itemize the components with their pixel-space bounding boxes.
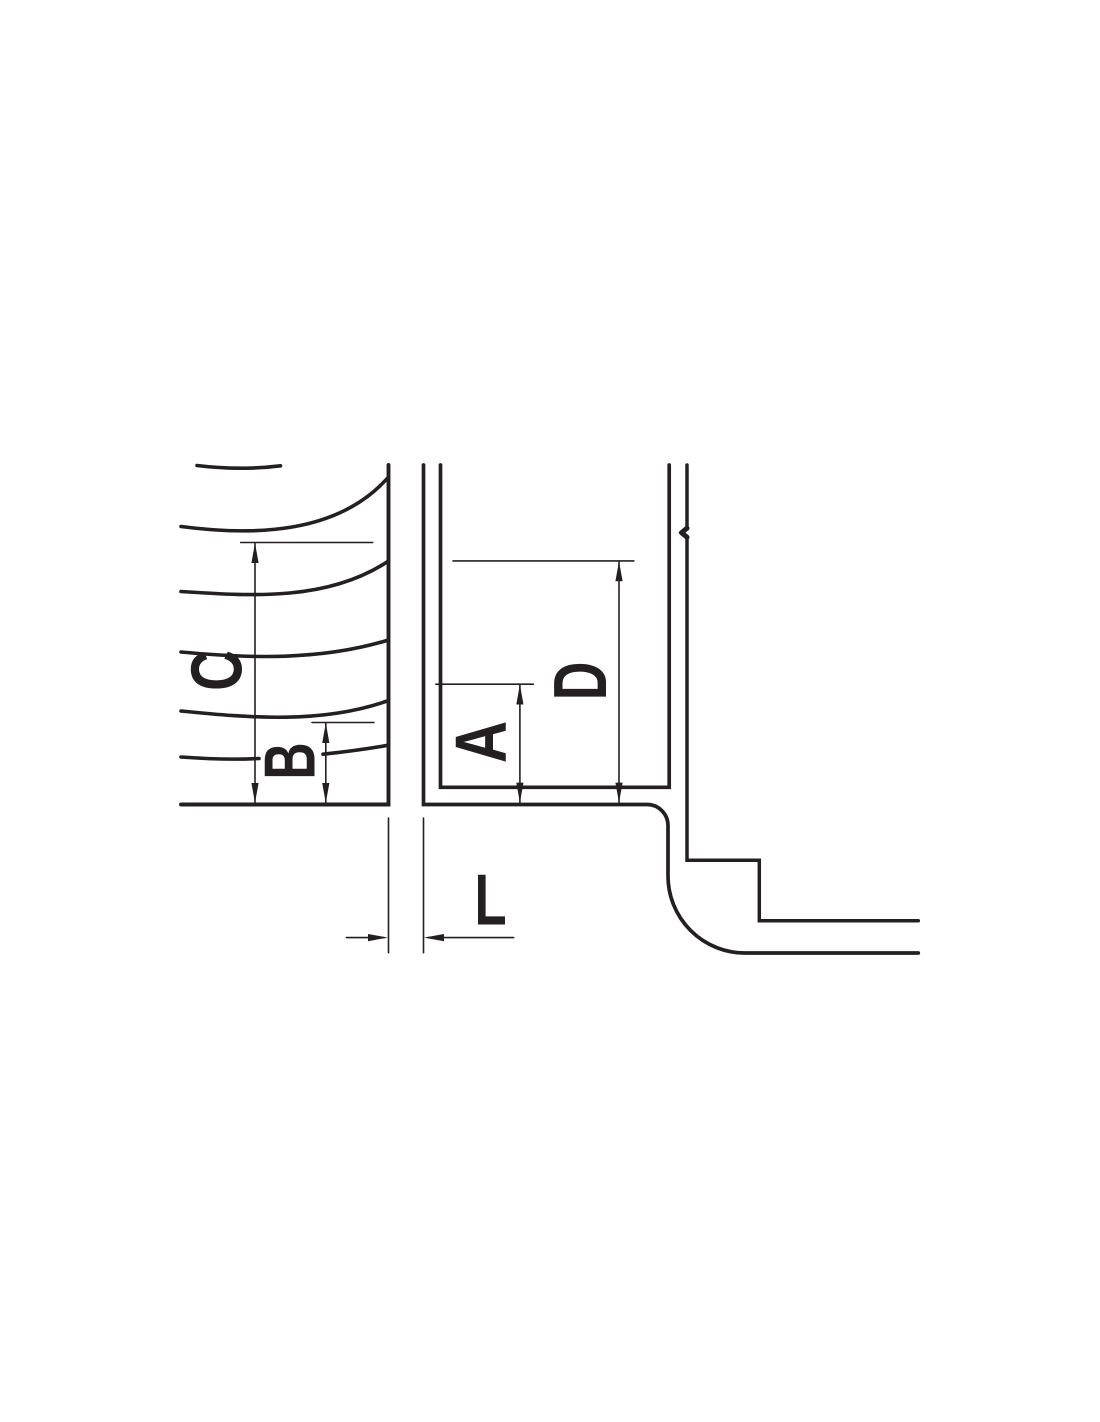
svg-text:B: B <box>250 742 331 779</box>
svg-text:A: A <box>441 721 521 763</box>
svg-text:C: C <box>176 650 257 691</box>
svg-text:D: D <box>538 662 622 701</box>
svg-text:L: L <box>475 861 507 941</box>
